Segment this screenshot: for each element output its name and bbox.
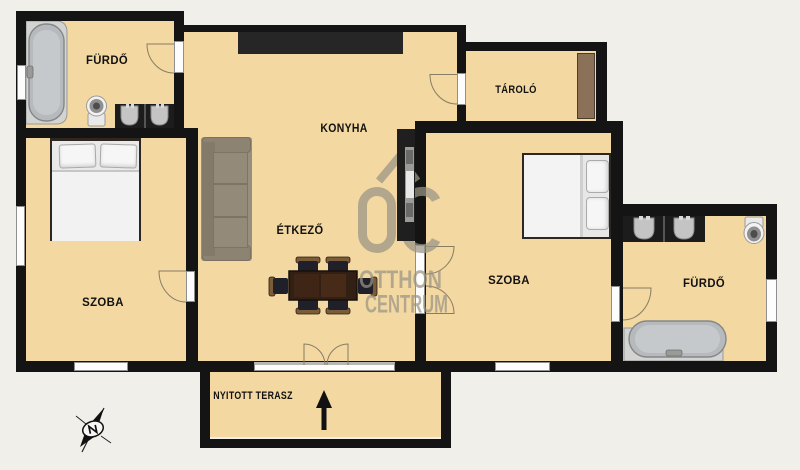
svg-text:CENTRUM: CENTRUM [365,291,448,319]
